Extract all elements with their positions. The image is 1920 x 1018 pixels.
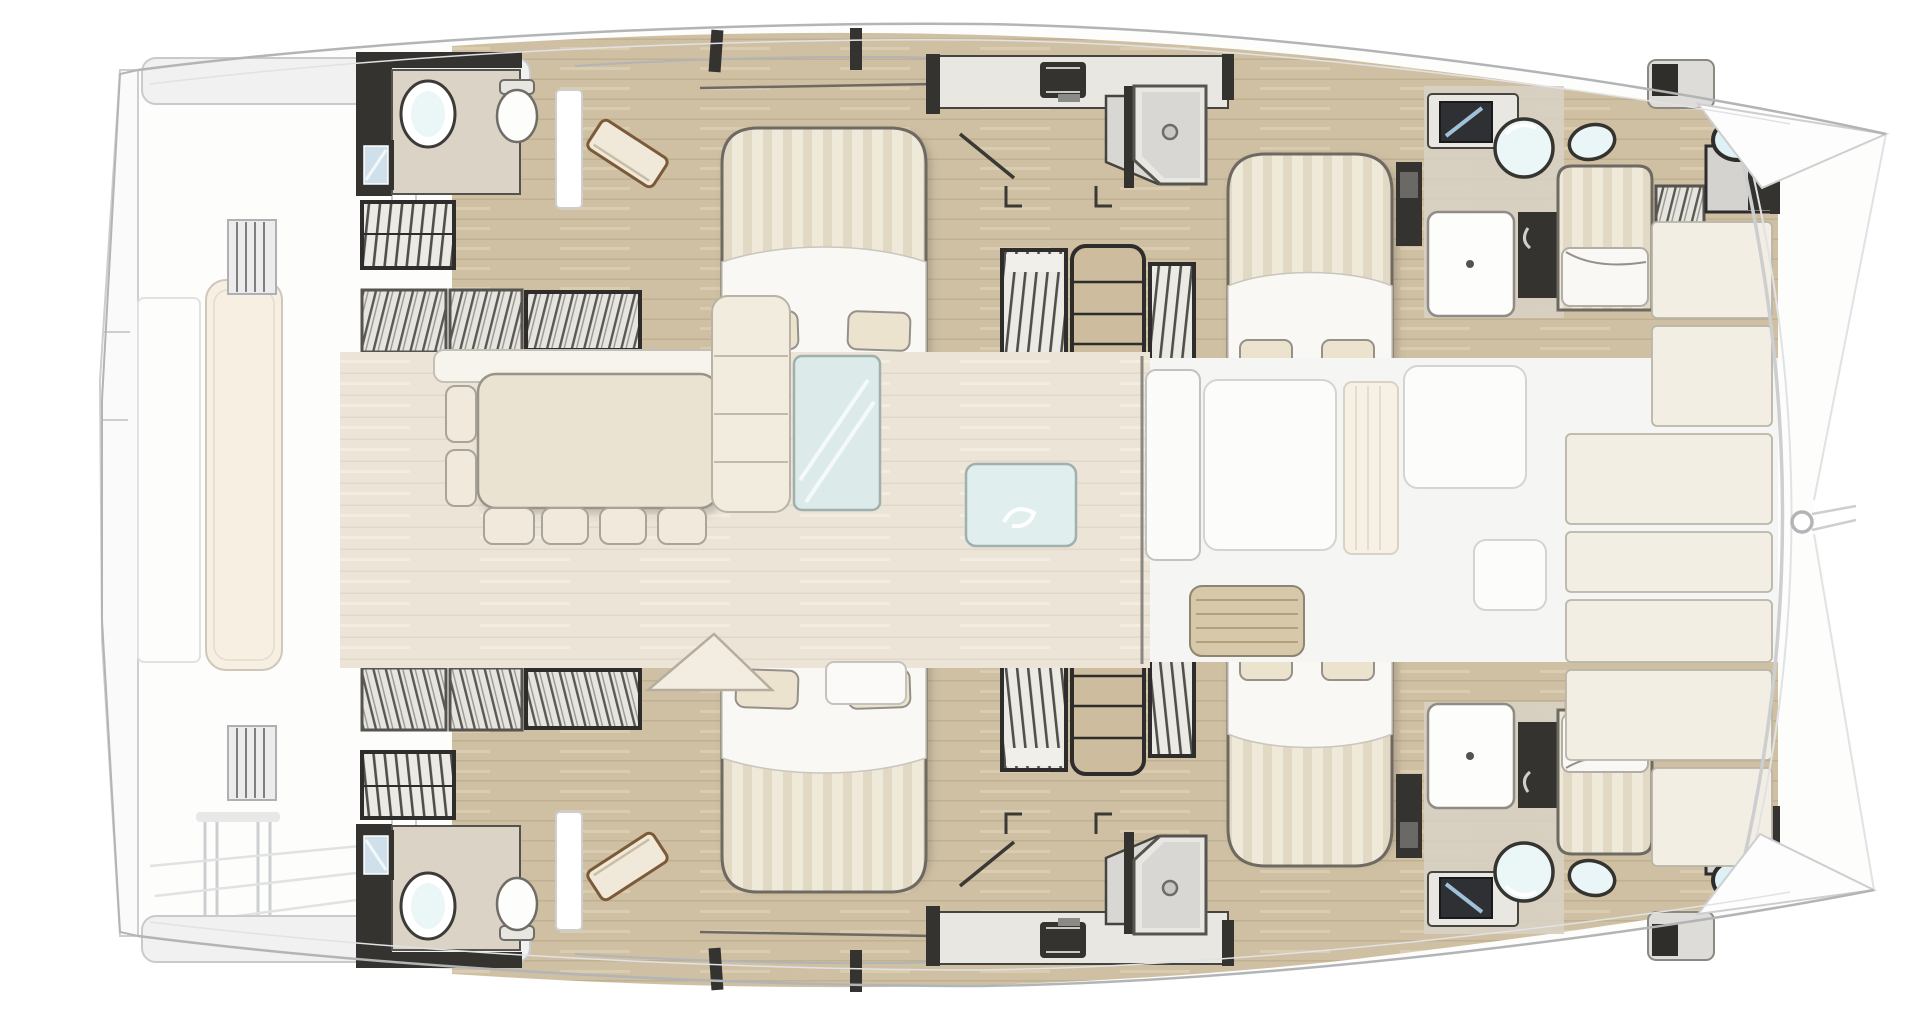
step-box: [826, 662, 906, 704]
dinette-table: [478, 374, 718, 508]
chair: [600, 508, 646, 544]
chair: [446, 450, 476, 506]
sunpad-panel: [1652, 326, 1772, 426]
glass-shower-panel: [794, 356, 880, 510]
chair: [446, 386, 476, 442]
cockpit-sofa: [1404, 366, 1526, 488]
cockpit-table: [1474, 540, 1546, 610]
salon-sofa: [712, 296, 790, 512]
cockpit-sofa: [1204, 380, 1336, 550]
chair: [484, 508, 534, 544]
chair: [542, 508, 588, 544]
transom-band: [100, 70, 138, 936]
sunpad-panel: [1566, 600, 1772, 662]
sunpad-panel: [1566, 532, 1772, 592]
glass-coffee-table: [966, 464, 1076, 546]
slatted-bench: [1190, 586, 1304, 656]
bowsprit-ring-icon: [1792, 512, 1812, 532]
sunpad-panel: [1652, 222, 1772, 318]
door-panel: [1146, 370, 1200, 560]
floor-plan-svg: [0, 0, 1920, 1018]
chair: [658, 508, 706, 544]
bowsprit-lines: [1812, 506, 1856, 530]
sunpad-panel: [1566, 670, 1772, 760]
sunpad-panel: [1566, 434, 1772, 524]
catamaran-floor-plan: [0, 0, 1920, 1018]
aft-bench-cushion: [206, 280, 282, 670]
salon-center: [340, 296, 1200, 704]
cockpit-cushion: [1344, 382, 1398, 554]
davit-beam: [196, 812, 280, 822]
